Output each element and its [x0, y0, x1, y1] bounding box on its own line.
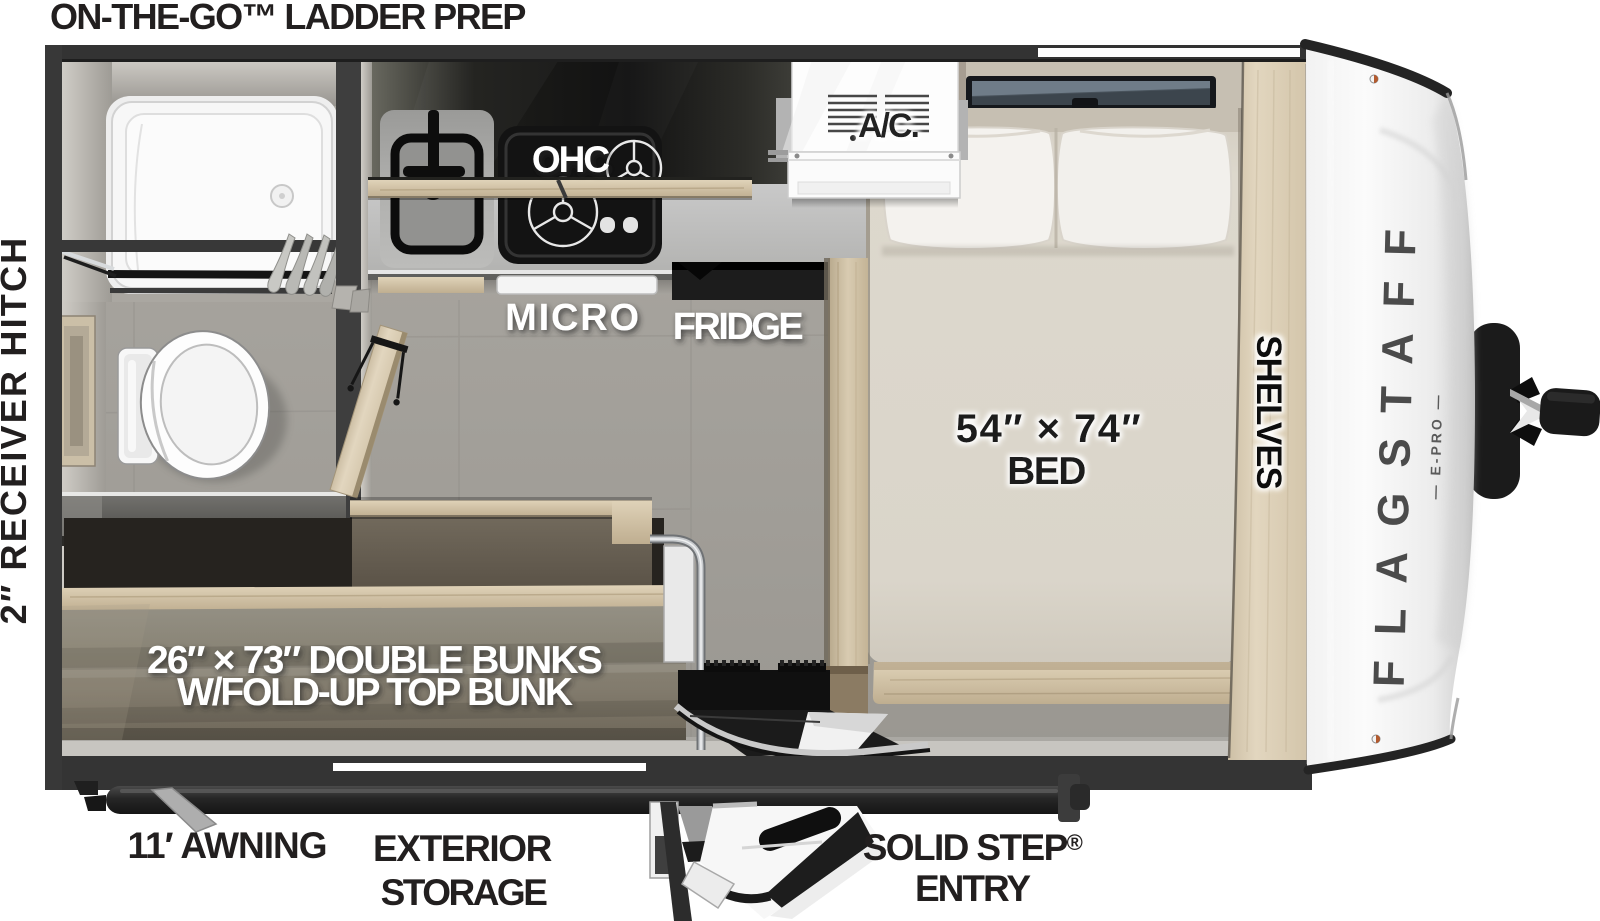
svg-text:OHC: OHC — [532, 139, 610, 180]
svg-text:STORAGE: STORAGE — [381, 872, 548, 913]
svg-text:FRIDGE: FRIDGE — [673, 306, 803, 348]
svg-text:EXTERIOR: EXTERIOR — [373, 828, 552, 869]
svg-text:MICRO: MICRO — [505, 297, 641, 339]
svg-text:A/C.: A/C. — [858, 107, 919, 145]
svg-text:BED: BED — [1007, 450, 1085, 493]
svg-text:W/FOLD-UP TOP BUNK: W/FOLD-UP TOP BUNK — [177, 671, 573, 714]
svg-text:ENTRY: ENTRY — [915, 868, 1031, 909]
svg-text:— E-PRO —: — E-PRO — — [1427, 392, 1446, 500]
svg-text:SHELVES: SHELVES — [1249, 335, 1288, 489]
svg-text:54″ × 74″: 54″ × 74″ — [956, 407, 1142, 451]
svg-text:SOLID STEP®: SOLID STEP® — [863, 827, 1083, 868]
svg-text:ON-THE-GO™ LADDER PREP: ON-THE-GO™ LADDER PREP — [50, 0, 525, 37]
svg-text:11′ AWNING: 11′ AWNING — [128, 825, 327, 866]
svg-text:2″ RECEIVER HITCH: 2″ RECEIVER HITCH — [0, 236, 34, 625]
